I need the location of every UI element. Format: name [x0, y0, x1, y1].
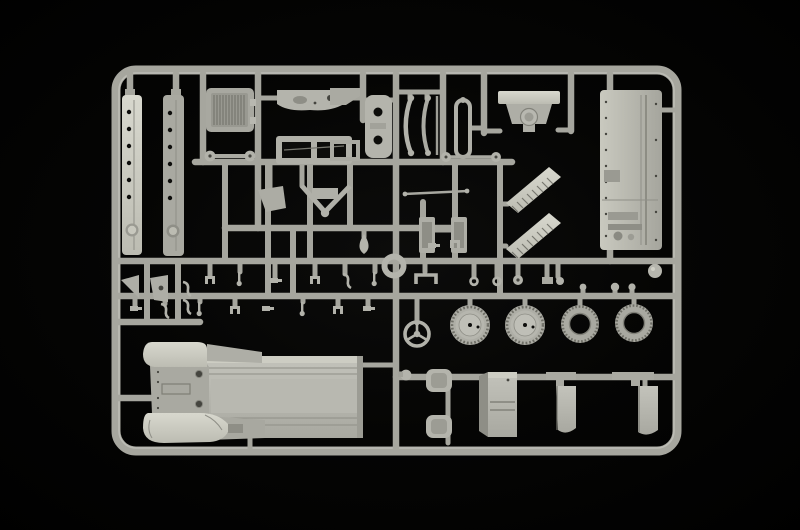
- side-strip-a: [122, 95, 142, 255]
- chassis-assembly: [143, 342, 363, 443]
- photo-stage: [0, 0, 800, 530]
- bed-side-panel: [600, 90, 662, 250]
- side-strip-b: [163, 95, 184, 256]
- stowage-box: [479, 372, 517, 437]
- sprue-photo: [0, 0, 800, 530]
- wheel-2: [505, 305, 545, 345]
- mounting-plate: [365, 95, 392, 158]
- radiator-grille: [206, 88, 256, 132]
- wheel-1: [450, 305, 490, 345]
